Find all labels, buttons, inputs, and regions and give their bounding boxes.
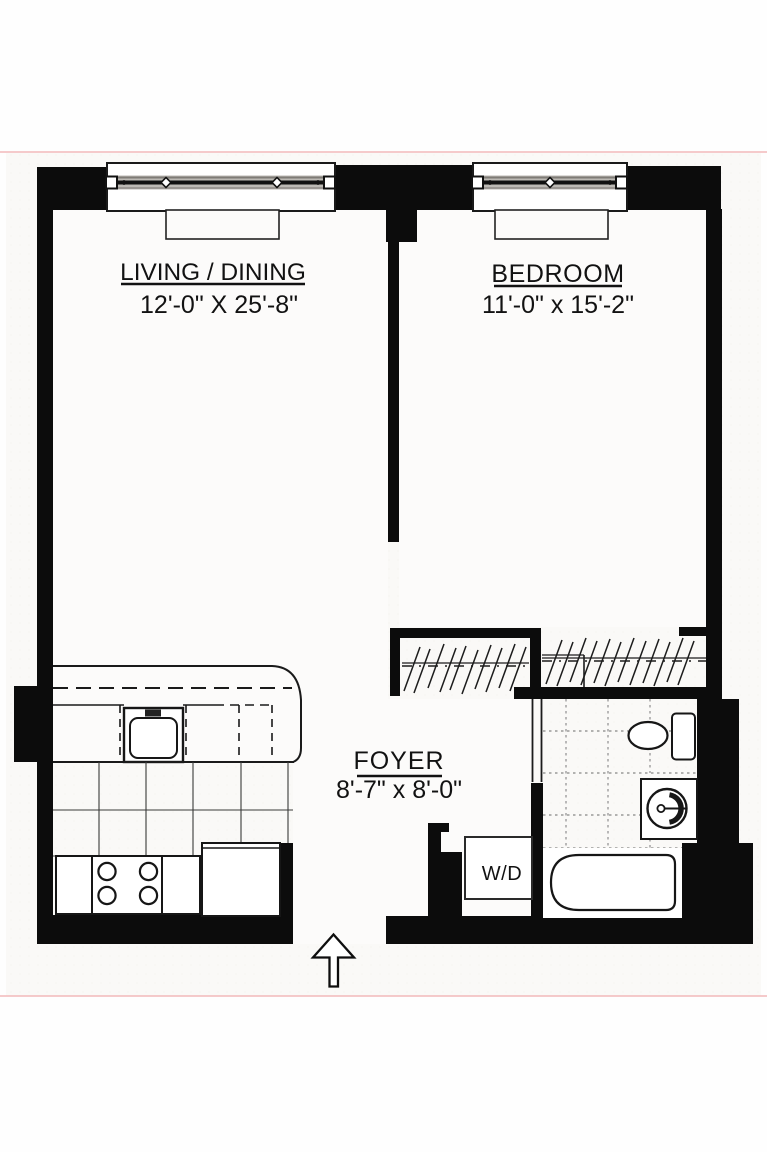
- svg-text:11'-0" x 15'-2": 11'-0" x 15'-2": [482, 291, 634, 319]
- svg-text:8'-7" x 8'-0": 8'-7" x 8'-0": [336, 776, 462, 804]
- svg-text:LIVING / DINING: LIVING / DINING: [120, 259, 306, 286]
- svg-text:12'-0" X 25'-8": 12'-0" X 25'-8": [140, 291, 298, 319]
- svg-text:BEDROOM: BEDROOM: [491, 260, 624, 288]
- svg-text:W/D: W/D: [482, 863, 522, 885]
- svg-text:FOYER: FOYER: [353, 747, 444, 775]
